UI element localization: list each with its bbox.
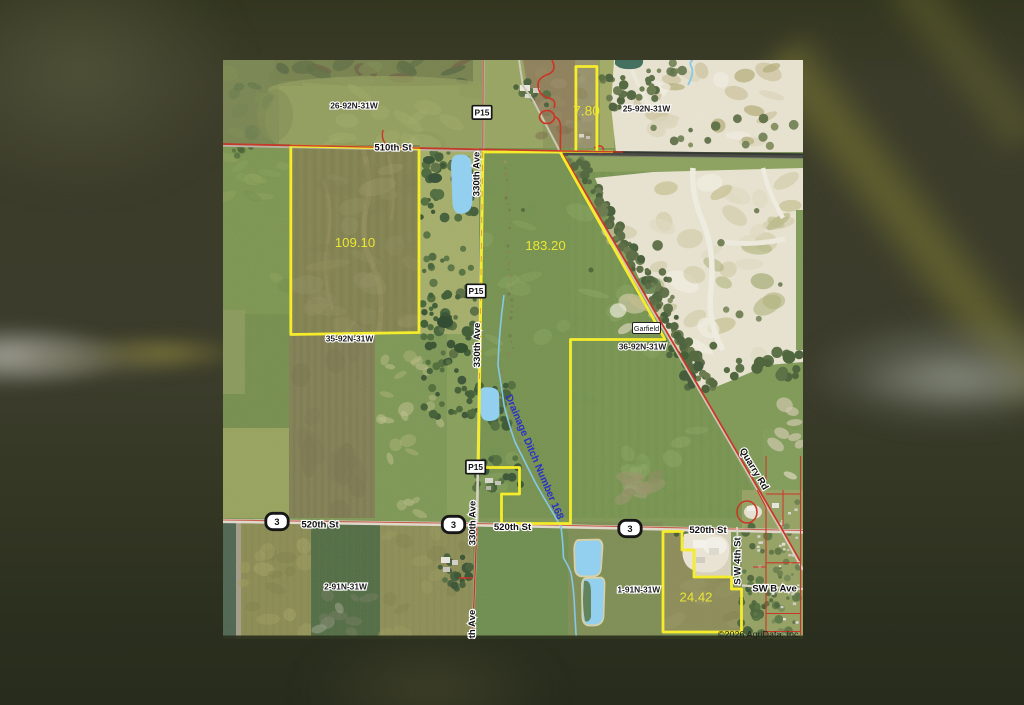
svg-text:330th Ave: 330th Ave [472,152,483,197]
svg-text:P15: P15 [475,108,490,118]
svg-text:520th St: 520th St [689,525,727,536]
svg-text:520th St: 520th St [301,520,339,531]
svg-text:©2026 AgriData, Inc.: ©2026 AgriData, Inc. [718,630,801,640]
svg-text:510th St: 510th St [374,143,412,154]
svg-text:3: 3 [627,524,632,534]
svg-text:7.80: 7.80 [573,104,600,119]
svg-text:S W 4th St: S W 4th St [733,536,744,584]
svg-text:SW B Ave: SW B Ave [752,583,797,594]
svg-text:Garfield: Garfield [634,324,659,333]
svg-text:330th Ave: 330th Ave [472,323,483,368]
svg-text:25-92N-31W: 25-92N-31W [623,104,671,114]
svg-text:3: 3 [451,520,456,530]
svg-text:183.20: 183.20 [525,238,565,253]
svg-text:2-91N-31W: 2-91N-31W [324,582,367,592]
svg-text:P15: P15 [468,462,483,472]
svg-text:3: 3 [274,517,279,527]
svg-text:1-91N-31W: 1-91N-31W [617,585,660,595]
svg-text:35-92N-31W: 35-92N-31W [326,334,374,344]
svg-text:P15: P15 [469,286,484,296]
svg-text:26-92N-31W: 26-92N-31W [330,101,378,111]
svg-text:109.10: 109.10 [335,235,375,250]
svg-text:520th St: 520th St [494,522,532,533]
svg-text:24.42: 24.42 [679,590,712,605]
svg-text:330th Ave: 330th Ave [468,501,479,546]
svg-text:330th Ave: 330th Ave [467,610,478,639]
svg-text:36-92N-31W: 36-92N-31W [619,342,667,352]
